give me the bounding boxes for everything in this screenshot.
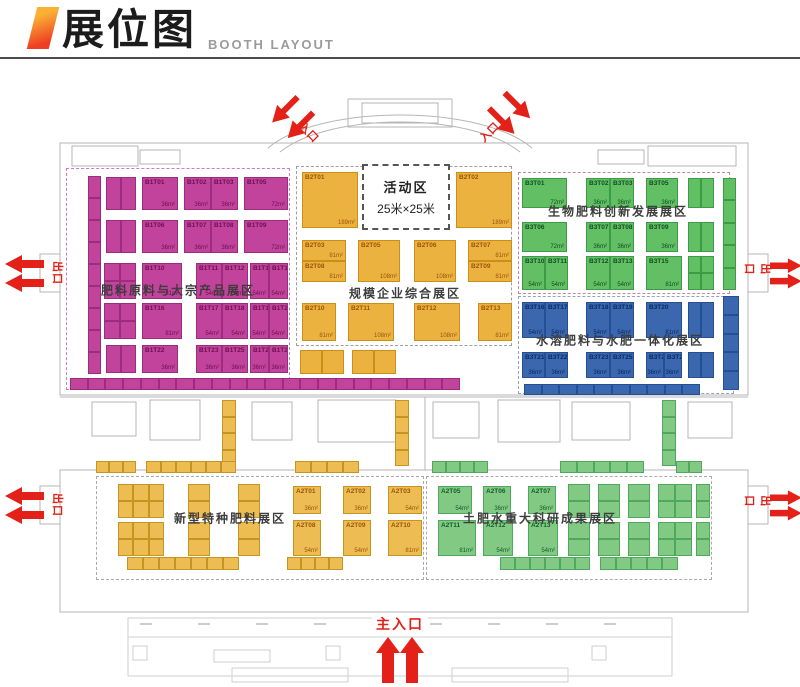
- booth-B3T15[interactable]: B3T1581m²: [646, 256, 682, 290]
- booth-B1T23[interactable]: B1T2336m²: [196, 345, 222, 373]
- raw-materials-zone-mini-booths: [106, 220, 136, 253]
- exit-label: 出口: [50, 261, 66, 285]
- exit-arrows-icon: [4, 486, 44, 524]
- mini-booth: [696, 522, 710, 539]
- booth-id: B1T19: [253, 305, 269, 312]
- mini-booth: [123, 461, 136, 473]
- booth-id: B1T02: [187, 179, 207, 186]
- booth-id: A2T10: [391, 522, 411, 529]
- booth-area: 189m²: [338, 220, 355, 226]
- mini-booth: [701, 178, 714, 208]
- soil-fertilizer-water-zone-label: 土肥水重大科研成果展区: [463, 510, 617, 527]
- activity-area-size: 25米×25米: [377, 200, 435, 217]
- booth-B3T26[interactable]: B3T2636m²: [646, 352, 664, 378]
- booth-B1T03[interactable]: B1T0336m²: [211, 177, 238, 210]
- mini-booth: [701, 352, 714, 378]
- mini-booth: [612, 384, 630, 395]
- booth-A2T10[interactable]: A2T1081m²: [388, 520, 422, 556]
- mini-booth: [120, 263, 136, 281]
- mini-booth: [123, 378, 141, 390]
- mini-booth: [723, 315, 739, 334]
- booth-B3T13[interactable]: B3T1354m²: [610, 256, 634, 290]
- mini-booth: [407, 378, 425, 390]
- mini-booth: [662, 433, 676, 450]
- mini-booth: [665, 384, 683, 395]
- mini-booth: [176, 461, 191, 473]
- mini-booth: [658, 484, 675, 501]
- booth-area: 72m²: [271, 202, 285, 208]
- water-soluble-zone-mini-booths: [524, 384, 700, 395]
- mini-booth: [88, 220, 101, 242]
- mini-booth: [206, 461, 221, 473]
- booth-id: B1T12: [225, 265, 245, 272]
- booth-id: A2T01: [296, 488, 316, 495]
- mini-booth: [560, 461, 577, 473]
- booth-id: B1T17: [199, 305, 219, 312]
- booth-id: B2T05: [361, 242, 381, 249]
- booth-id: B2T03: [305, 242, 325, 249]
- mini-booth: [598, 484, 620, 501]
- mini-booth: [222, 433, 236, 450]
- booth-id: A2T06: [486, 488, 506, 495]
- booth-id: B2T09: [471, 263, 491, 270]
- mini-booth: [247, 378, 265, 390]
- mini-booth: [658, 501, 675, 518]
- booth-B2T03[interactable]: B2T0381m²: [302, 240, 346, 261]
- mini-booth: [300, 378, 318, 390]
- mini-booth: [127, 557, 143, 570]
- mini-booth: [118, 539, 133, 556]
- booth-B1T20[interactable]: B1T2054m²: [269, 303, 288, 339]
- booth-area: 36m²: [221, 245, 235, 251]
- mini-booth: [96, 461, 109, 473]
- booth-B3T25[interactable]: B3T2536m²: [610, 352, 634, 378]
- exit-marker-right-lower: 出口: [748, 486, 800, 524]
- mini-booth: [175, 557, 191, 570]
- mini-booth: [701, 273, 714, 290]
- soil-fertilizer-water-zone-mini-booths: [598, 522, 620, 556]
- mini-booth: [560, 557, 575, 570]
- booth-B2T02[interactable]: B2T02189m²: [456, 172, 512, 228]
- new-special-fertilizer-zone-mini-booths: [295, 461, 359, 473]
- mini-booth: [627, 461, 644, 473]
- mini-booth: [675, 522, 692, 539]
- booth-area: 54m²: [551, 282, 565, 288]
- soil-fertilizer-water-zone-mini-booths: [662, 400, 676, 466]
- booth-A2T01[interactable]: A2T0136m²: [293, 486, 321, 514]
- mini-booth: [662, 400, 676, 417]
- mini-booth: [141, 378, 159, 390]
- raw-materials-zone-label: 肥料原料与大宗产品展区: [101, 282, 255, 299]
- booth-id: B1T08: [214, 222, 234, 229]
- booth-B1T18[interactable]: B1T1854m²: [222, 303, 248, 339]
- bio-fertilizer-zone-mini-booths: [688, 222, 714, 252]
- mini-booth: [343, 461, 359, 473]
- booth-B1T06[interactable]: B1T0636m²: [142, 220, 178, 253]
- booth-id: B3T26: [649, 354, 664, 361]
- mini-booth: [161, 461, 176, 473]
- booth-B2T13[interactable]: B2T1381m²: [478, 303, 512, 341]
- booth-B2T01[interactable]: B2T01189m²: [302, 172, 358, 228]
- booth-area: 36m²: [647, 370, 661, 376]
- mini-booth: [675, 501, 692, 518]
- exit-arrows-icon: [770, 486, 800, 524]
- booth-area: 36m²: [528, 370, 542, 376]
- mini-booth: [106, 345, 121, 373]
- scale-enterprise-zone-label: 规模企业综合展区: [349, 285, 461, 302]
- mini-booth: [194, 378, 212, 390]
- mini-booth: [628, 501, 650, 518]
- booth-area: 81m²: [319, 333, 333, 339]
- booth-id: B1T07: [187, 222, 207, 229]
- main-entrance-label: 主入口: [372, 614, 428, 634]
- soil-fertilizer-water-zone-mini-booths: [600, 557, 678, 570]
- booth-area: 54m²: [271, 331, 285, 337]
- booth-id: B3T13: [613, 258, 633, 265]
- soil-fertilizer-water-zone-mini-booths: [676, 461, 702, 473]
- booth-id: B3T06: [525, 224, 545, 231]
- mini-booth: [515, 557, 530, 570]
- mini-booth: [88, 286, 101, 308]
- mini-booth: [575, 557, 590, 570]
- mini-booth: [222, 400, 236, 417]
- booth-A2T09[interactable]: A2T0954m²: [343, 520, 371, 556]
- new-special-fertilizer-zone-mini-booths: [146, 461, 236, 473]
- booth-id: B3T21: [525, 354, 545, 361]
- mini-booth: [70, 378, 88, 390]
- booth-id: B1T03: [214, 179, 234, 186]
- booth-id: A2T05: [441, 488, 461, 495]
- booth-B1T09[interactable]: B1T0972m²: [244, 220, 288, 253]
- booth-id: B1T25: [225, 347, 245, 354]
- mini-booth: [395, 450, 409, 467]
- booth-area: 54m²: [231, 331, 245, 337]
- mini-booth: [88, 176, 101, 198]
- mini-booth: [318, 378, 336, 390]
- booth-id: B2T02: [459, 174, 479, 181]
- booth-area: 54m²: [304, 548, 318, 554]
- booth-area: 36m²: [551, 370, 565, 376]
- booth-area: 36m²: [617, 244, 631, 250]
- new-special-fertilizer-zone-mini-booths: [188, 522, 210, 556]
- mini-booth: [594, 384, 612, 395]
- booth-A2T08[interactable]: A2T0854m²: [293, 520, 321, 556]
- exit-arrows-icon: [770, 254, 800, 292]
- booth-B1T08[interactable]: B1T0836m²: [211, 220, 238, 253]
- booth-area: 81m²: [329, 274, 343, 280]
- mini-booth: [723, 334, 739, 353]
- mini-booth: [460, 461, 474, 473]
- main-entrance-arrows-icon: [376, 636, 424, 684]
- mini-booth: [723, 245, 736, 267]
- mini-booth: [662, 450, 676, 467]
- booth-B3T22[interactable]: B3T2236m²: [545, 352, 568, 378]
- entrance-marker-top-left: 入口: [258, 90, 316, 148]
- new-special-fertilizer-zone-label: 新型特种肥料展区: [174, 510, 286, 527]
- booth-area: 72m²: [550, 244, 564, 250]
- mini-booth: [545, 557, 560, 570]
- mini-booth: [143, 557, 159, 570]
- mini-booth: [106, 177, 121, 210]
- mini-booth: [222, 417, 236, 434]
- booth-area: 36m²: [205, 365, 219, 371]
- mini-booth: [295, 461, 311, 473]
- mini-booth: [329, 557, 343, 570]
- mini-booth: [109, 461, 122, 473]
- raw-materials-zone-mini-booths: [106, 345, 136, 373]
- booth-area: 36m²: [194, 245, 208, 251]
- booth-id: B2T12: [417, 305, 437, 312]
- mini-booth: [88, 378, 106, 390]
- mini-booth: [301, 557, 315, 570]
- mini-booth: [662, 557, 678, 570]
- booth-B1T02[interactable]: B1T0236m²: [184, 177, 211, 210]
- booth-id: B3T08: [613, 224, 633, 231]
- booth-area: 36m²: [661, 244, 675, 250]
- mini-booth: [146, 461, 161, 473]
- activity-area: 活动区 25米×25米: [362, 164, 450, 230]
- mini-booth: [238, 539, 260, 556]
- booth-area: 54m²: [271, 291, 285, 297]
- booth-B1T27[interactable]: B1T2736m²: [269, 345, 288, 373]
- mini-booth: [628, 484, 650, 501]
- water-soluble-zone-mini-booths: [723, 296, 739, 390]
- mini-booth: [647, 557, 663, 570]
- mini-booth: [149, 501, 164, 518]
- booth-area: 108m²: [380, 274, 397, 280]
- booth-area: 54m²: [617, 282, 631, 288]
- mini-booth: [191, 557, 207, 570]
- soil-fertilizer-water-zone-mini-booths: [658, 522, 692, 556]
- mini-booth: [658, 522, 675, 539]
- exit-arrows-icon: [4, 254, 44, 292]
- booth-B1T15[interactable]: B1T1554m²: [269, 263, 288, 299]
- booth-id: B1T01: [145, 179, 165, 186]
- mini-booth: [105, 378, 123, 390]
- booth-B1T19[interactable]: B1T1954m²: [250, 303, 269, 339]
- booth-B3T09[interactable]: B3T0936m²: [646, 222, 678, 252]
- booth-area: 54m²: [252, 331, 266, 337]
- mini-booth: [628, 522, 650, 539]
- mini-booth: [118, 484, 133, 501]
- mini-booth: [149, 522, 164, 539]
- soil-fertilizer-water-zone-mini-booths: [696, 484, 710, 518]
- mini-booth: [395, 417, 409, 434]
- booth-id: B1T13: [253, 265, 269, 272]
- booth-B1T17[interactable]: B1T1754m²: [196, 303, 222, 339]
- mini-booth: [568, 484, 590, 501]
- booth-B2T05[interactable]: B2T05108m²: [358, 240, 400, 282]
- booth-B3T07[interactable]: B3T0736m²: [586, 222, 610, 252]
- mini-booth: [121, 345, 136, 373]
- mini-booth: [354, 378, 372, 390]
- mini-booth: [311, 461, 327, 473]
- mini-booth: [425, 378, 443, 390]
- booth-id: B1T20: [272, 305, 288, 312]
- booth-id: B3T09: [649, 224, 669, 231]
- mini-booth: [88, 330, 101, 352]
- mini-booth: [265, 378, 283, 390]
- booth-id: B3T19: [613, 304, 633, 311]
- booth-id: B3T11: [548, 258, 567, 265]
- mini-booth: [675, 484, 692, 501]
- booth-B2T11[interactable]: B2T11108m²: [348, 303, 394, 341]
- booth-id: B3T07: [589, 224, 609, 231]
- booth-area: 36m²: [161, 245, 175, 251]
- mini-booth: [594, 461, 611, 473]
- booth-id: A2T11: [441, 522, 460, 529]
- mini-booth: [315, 557, 329, 570]
- booth-B3T21[interactable]: B3T2136m²: [522, 352, 545, 378]
- booth-area: 36m²: [304, 506, 318, 512]
- bio-fertilizer-zone-mini-booths: [688, 178, 714, 208]
- booth-B2T09[interactable]: B2T0981m²: [468, 261, 512, 282]
- booth-B1T26[interactable]: B1T2636m²: [250, 345, 269, 373]
- booth-area: 54m²: [405, 506, 419, 512]
- booth-B1T16[interactable]: B1T1681m²: [142, 303, 182, 339]
- bio-fertilizer-zone-mini-booths: [723, 178, 736, 290]
- mini-booth: [647, 384, 665, 395]
- new-special-fertilizer-zone-mini-booths: [238, 522, 260, 556]
- booth-id: B3T15: [649, 258, 669, 265]
- new-special-fertilizer-zone-mini-booths: [118, 522, 164, 556]
- mini-booth: [675, 539, 692, 556]
- mini-booth: [133, 484, 148, 501]
- booth-area: 54m²: [593, 282, 607, 288]
- booth-id: B1T10: [145, 265, 165, 272]
- soil-fertilizer-water-zone-mini-booths: [432, 461, 488, 473]
- new-special-fertilizer-zone-mini-booths: [287, 557, 343, 570]
- mini-booth: [689, 461, 702, 473]
- mini-booth: [106, 220, 121, 253]
- mini-booth: [723, 178, 736, 200]
- mini-booth: [662, 417, 676, 434]
- floor-map: B1T0136m²B1T0236m²B1T0336m²B1T0572m²B1T0…: [0, 0, 800, 687]
- booth-B3T06[interactable]: B3T0672m²: [522, 222, 567, 252]
- booth-area: 81m²: [495, 333, 509, 339]
- scale-enterprise-zone-mini-booths: [300, 350, 344, 374]
- booth-id: B1T11: [199, 265, 218, 272]
- mini-booth: [104, 303, 120, 321]
- booth-B3T10[interactable]: B3T1054m²: [522, 256, 545, 290]
- booth-B2T12[interactable]: B2T12108m²: [414, 303, 460, 341]
- mini-booth: [88, 264, 101, 286]
- booth-area: 108m²: [436, 274, 453, 280]
- booth-area: 81m²: [459, 548, 473, 554]
- booth-B1T07[interactable]: B1T0736m²: [184, 220, 211, 253]
- mini-booth: [701, 256, 714, 273]
- mini-booth: [688, 256, 701, 273]
- booth-B3T27[interactable]: B3T2736m²: [664, 352, 682, 378]
- mini-booth: [631, 557, 647, 570]
- mini-booth: [238, 484, 260, 501]
- mini-booth: [446, 461, 460, 473]
- booth-id: A2T09: [346, 522, 366, 529]
- booth-layout-page: 展位图 BOOTH LAYOUT: [0, 0, 800, 687]
- booth-A2T03[interactable]: A2T0354m²: [388, 486, 422, 514]
- mini-booth: [542, 384, 560, 395]
- booth-id: B3T02: [589, 180, 609, 187]
- mini-booth: [230, 378, 248, 390]
- mini-booth: [223, 557, 239, 570]
- booth-B3T12[interactable]: B3T1254m²: [586, 256, 610, 290]
- booth-id: B2T13: [481, 305, 501, 312]
- mini-booth: [688, 178, 701, 208]
- booth-area: 54m²: [541, 548, 555, 554]
- booth-id: B1T06: [145, 222, 165, 229]
- booth-id: B1T26: [253, 347, 269, 354]
- booth-id: A2T07: [531, 488, 551, 495]
- mini-booth: [577, 461, 594, 473]
- booth-id: A2T08: [296, 522, 316, 529]
- booth-B3T08[interactable]: B3T0836m²: [610, 222, 634, 252]
- mini-booth: [336, 378, 354, 390]
- booth-B3T23[interactable]: B3T2336m²: [586, 352, 610, 378]
- mini-booth: [395, 433, 409, 450]
- mini-booth: [133, 539, 148, 556]
- soil-fertilizer-water-zone-mini-booths: [568, 522, 590, 556]
- mini-booth: [577, 384, 595, 395]
- mini-booth: [159, 378, 177, 390]
- booth-B1T22[interactable]: B1T2236m²: [142, 345, 178, 373]
- booth-area: 36m²: [252, 365, 266, 371]
- booth-area: 72m²: [271, 245, 285, 251]
- mini-booth: [207, 557, 223, 570]
- booth-B2T07[interactable]: B2T0781m²: [468, 240, 512, 261]
- booth-B2T08[interactable]: B2T0881m²: [302, 261, 346, 282]
- exit-label: 出口: [742, 263, 774, 283]
- raw-materials-zone-mini-booths: [106, 177, 136, 210]
- booth-id: B2T10: [305, 305, 325, 312]
- booth-B2T06[interactable]: B2T06108m²: [414, 240, 456, 282]
- booth-area: 81m²: [665, 282, 679, 288]
- booth-B3T11[interactable]: B3T1154m²: [545, 256, 568, 290]
- mini-booth: [559, 384, 577, 395]
- mini-booth: [88, 242, 101, 264]
- booth-area: 54m²: [528, 282, 542, 288]
- mini-booth: [188, 539, 210, 556]
- mini-booth: [221, 461, 236, 473]
- booth-B1T25[interactable]: B1T2536m²: [222, 345, 248, 373]
- main-entrance-marker: 主入口: [358, 614, 442, 684]
- booth-id: B3T20: [649, 304, 669, 311]
- booth-id: B3T12: [589, 258, 609, 265]
- booth-id: B2T11: [351, 305, 370, 312]
- soil-fertilizer-water-zone-mini-booths: [560, 461, 644, 473]
- exit-label: 出口: [50, 493, 66, 517]
- booth-A2T02[interactable]: A2T0236m²: [343, 486, 371, 514]
- mini-booth: [191, 461, 206, 473]
- mini-booth: [352, 350, 374, 374]
- booth-area: 54m²: [496, 548, 510, 554]
- booth-B1T01[interactable]: B1T0136m²: [142, 177, 178, 210]
- mini-booth: [688, 222, 701, 252]
- booth-id: B1T27: [272, 347, 288, 354]
- booth-B2T10[interactable]: B2T1081m²: [302, 303, 336, 341]
- soil-fertilizer-water-zone-mini-booths: [696, 522, 710, 556]
- booth-id: B2T07: [471, 242, 491, 249]
- booth-B1T05[interactable]: B1T0572m²: [244, 177, 288, 210]
- mini-booth: [696, 501, 710, 518]
- mini-booth: [371, 378, 389, 390]
- new-special-fertilizer-zone-mini-booths: [118, 484, 164, 518]
- booth-area: 36m²: [354, 506, 368, 512]
- booth-area: 36m²: [593, 370, 607, 376]
- mini-booth: [395, 400, 409, 417]
- water-soluble-zone-mini-booths: [688, 352, 714, 378]
- booth-area: 81m²: [495, 253, 509, 259]
- mini-booth: [120, 303, 136, 321]
